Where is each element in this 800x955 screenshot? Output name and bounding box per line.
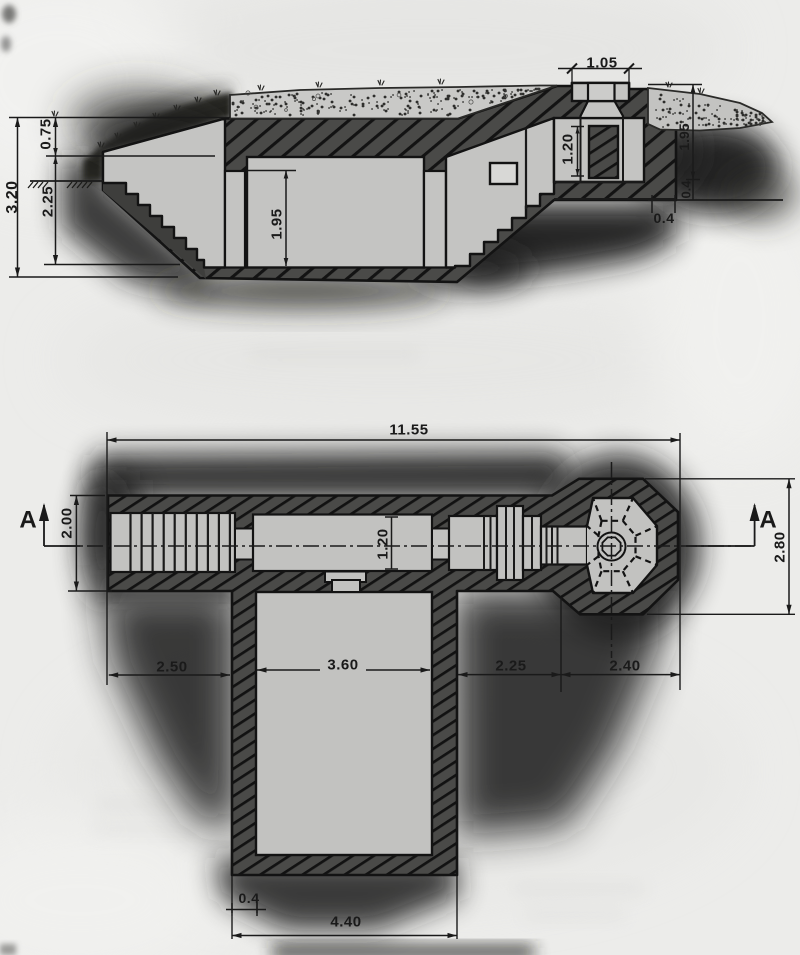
- svg-text:1.20: 1.20: [559, 133, 576, 164]
- svg-text:11.55: 11.55: [389, 421, 428, 438]
- svg-text:1.95: 1.95: [676, 123, 692, 150]
- svg-text:4.40: 4.40: [330, 913, 361, 930]
- svg-text:A: A: [19, 507, 36, 534]
- svg-text:A: A: [759, 507, 776, 534]
- svg-text:1.05: 1.05: [586, 54, 617, 71]
- svg-text:1.95: 1.95: [268, 208, 285, 239]
- svg-text:2.80: 2.80: [771, 531, 788, 562]
- svg-text:2.40: 2.40: [609, 657, 640, 674]
- svg-text:0.75: 0.75: [37, 118, 54, 149]
- svg-text:0.4: 0.4: [654, 210, 675, 226]
- svg-text:0.4: 0.4: [239, 890, 260, 906]
- svg-text:2.25: 2.25: [39, 186, 56, 217]
- svg-text:2.50: 2.50: [156, 658, 187, 675]
- svg-text:0.4: 0.4: [679, 180, 694, 199]
- svg-text:3.20: 3.20: [4, 180, 21, 213]
- svg-text:2.25: 2.25: [495, 657, 526, 674]
- svg-text:3.60: 3.60: [327, 656, 358, 673]
- svg-text:1.20: 1.20: [374, 528, 391, 559]
- svg-text:2.00: 2.00: [58, 507, 75, 538]
